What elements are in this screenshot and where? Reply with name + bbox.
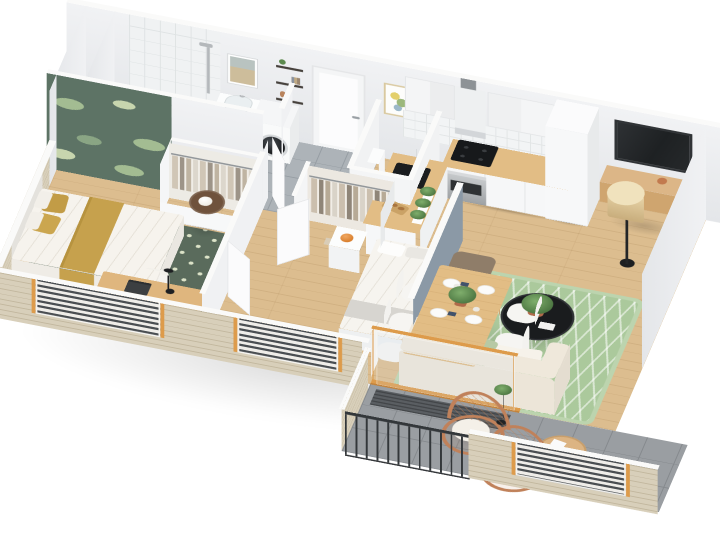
door-handle-icon (352, 116, 360, 120)
shelf-plant-icon (279, 59, 286, 65)
range-hood (455, 86, 486, 139)
open-door-leaf (277, 198, 309, 265)
bathroom-east-wall2 (263, 139, 268, 209)
wall-tv (614, 119, 692, 174)
tall-cabinet-front (545, 126, 587, 226)
framed-photo (228, 54, 257, 88)
wall-shelf (276, 65, 303, 72)
desk-lamp-arm (167, 275, 169, 292)
sliding-door-post (372, 328, 373, 384)
floor-plan-stage (0, 0, 720, 540)
shower-bar-icon (207, 47, 210, 94)
